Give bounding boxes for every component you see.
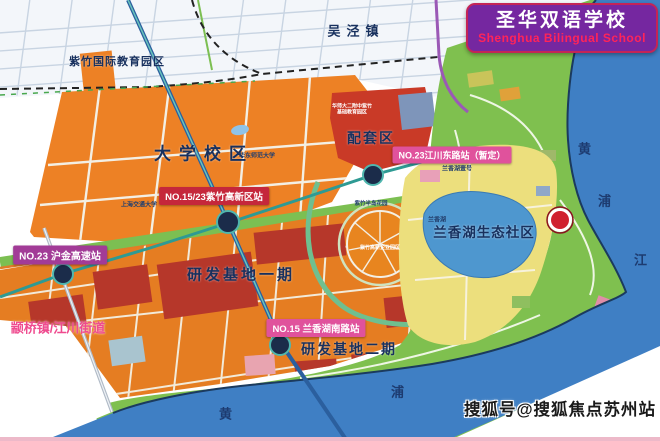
supporting-area-zone	[330, 87, 436, 172]
station-dot-jiangchuan-east	[363, 165, 383, 185]
bottom-strip	[0, 437, 660, 441]
station-dot-zizhu-hitech	[217, 211, 239, 233]
school-name-en: Shenghua Bilingual School	[478, 31, 646, 45]
station-dot-hujin	[53, 264, 73, 284]
watermark-text: 搜狐号@搜狐焦点苏州站	[462, 396, 658, 420]
map-graphic	[0, 0, 660, 441]
school-location-marker	[547, 207, 573, 233]
bluegray-parcel	[398, 92, 436, 130]
school-title-card: 圣华双语学校 Shenghua Bilingual School	[466, 3, 658, 53]
station-dot-lanxianghu-south	[270, 335, 290, 355]
school-name-cn: 圣华双语学校	[496, 11, 628, 32]
planning-map: 吴泾镇 紫竹国际教育园区 大学校区 配套区 研发基地一期 研发基地二期 兰香湖生…	[0, 0, 660, 441]
